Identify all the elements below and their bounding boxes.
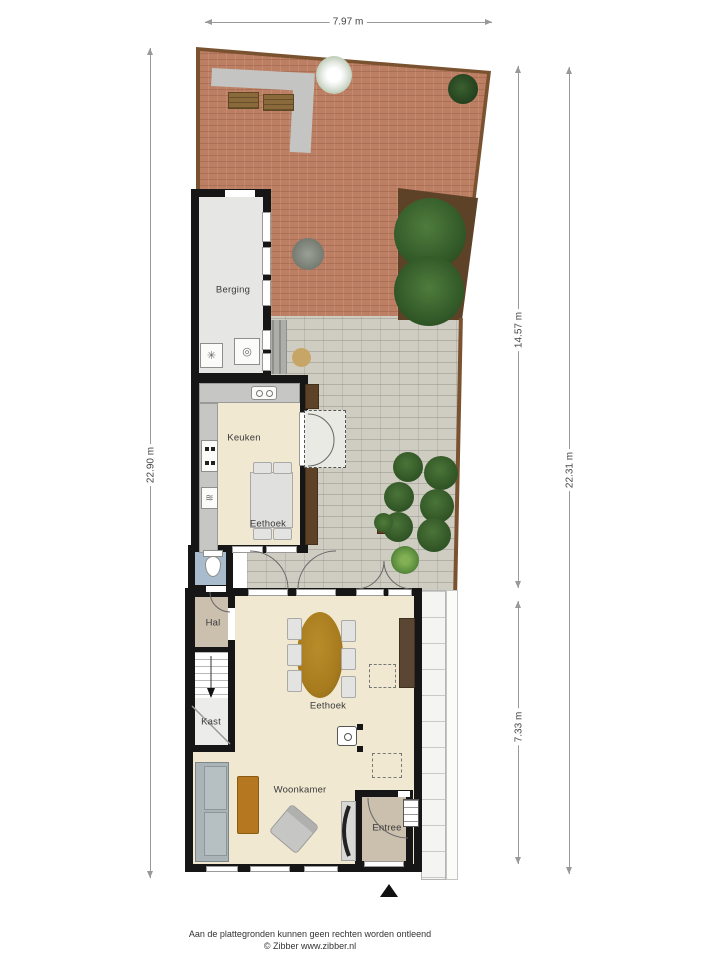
sidewalk-outer bbox=[446, 590, 458, 880]
patio-door bbox=[356, 589, 384, 596]
dim-label-top: 7.97 m bbox=[330, 17, 367, 28]
washer-icon: ✳ bbox=[200, 343, 223, 368]
patio-shrub-icon bbox=[393, 452, 423, 482]
window bbox=[250, 866, 290, 872]
garden-bush-icon bbox=[394, 256, 464, 326]
dim-label-right-lower: 7.33 m bbox=[514, 709, 525, 746]
stepping-stone bbox=[292, 348, 311, 367]
planter bbox=[305, 467, 318, 545]
stove-icon bbox=[201, 440, 218, 472]
chair bbox=[341, 620, 356, 642]
label-berging: Berging bbox=[216, 285, 250, 296]
radiator-dashed bbox=[369, 664, 396, 688]
label-hal: Hal bbox=[206, 618, 221, 629]
patio-shrub-icon bbox=[384, 482, 414, 512]
window bbox=[266, 546, 297, 553]
potted-plant-icon bbox=[374, 513, 393, 532]
window bbox=[262, 280, 271, 306]
toilet-door-gap bbox=[206, 586, 226, 592]
flue-point bbox=[357, 724, 363, 730]
footer-disclaimer: Aan de plattegronden kunnen geen rechten… bbox=[189, 928, 431, 940]
berging-door-gap bbox=[225, 190, 255, 197]
sideboard bbox=[399, 618, 415, 688]
tree-icon bbox=[448, 74, 478, 104]
chair bbox=[287, 670, 302, 692]
sofa-cushion bbox=[204, 766, 227, 810]
chair bbox=[341, 648, 356, 670]
entree-front-door-gap bbox=[398, 791, 410, 797]
window bbox=[364, 861, 404, 867]
fireplace-icon bbox=[337, 726, 357, 746]
flower-bush-icon bbox=[316, 56, 352, 94]
entrance-arrow-icon bbox=[380, 884, 398, 897]
garden-bench bbox=[228, 92, 259, 109]
sofa-cushion bbox=[204, 812, 227, 856]
footer: Aan de plattegronden kunnen geen rechten… bbox=[189, 928, 431, 952]
meter-cabinet bbox=[403, 799, 419, 827]
dim-label-right-upper: 14.57 m bbox=[514, 309, 525, 351]
flue-point bbox=[357, 746, 363, 752]
radiator-dashed bbox=[372, 753, 402, 778]
dim-label-left: 22.90 m bbox=[146, 444, 157, 486]
patio-shrub-icon bbox=[417, 518, 451, 552]
awning bbox=[304, 410, 346, 468]
hal-door-gap bbox=[228, 608, 235, 640]
grass-tuft-icon bbox=[391, 546, 419, 574]
label-entree: Entree bbox=[372, 823, 401, 834]
chair bbox=[273, 528, 292, 540]
tv-stand bbox=[341, 801, 356, 861]
window bbox=[206, 866, 238, 872]
window bbox=[262, 247, 271, 275]
patio-door bbox=[388, 589, 412, 596]
chair bbox=[287, 644, 302, 666]
label-kast: Kast bbox=[201, 717, 221, 728]
sidewalk bbox=[421, 590, 446, 880]
garden-bench bbox=[263, 94, 294, 111]
dishwasher-icon: ≋ bbox=[201, 487, 218, 509]
chair bbox=[287, 618, 302, 640]
chair bbox=[273, 462, 292, 474]
planter bbox=[305, 384, 319, 409]
gray-shrub-icon bbox=[292, 238, 324, 270]
footer-credit: © Zibber www.zibber.nl bbox=[189, 940, 431, 952]
dim-label-right-outer: 22.31 m bbox=[565, 449, 576, 491]
floorplan-canvas: 7.97 m 22.90 m 14.57 m 7.33 m 22.31 m bbox=[0, 0, 720, 960]
chair bbox=[341, 676, 356, 698]
label-eethoek-keuken: Eethoek bbox=[250, 519, 286, 530]
window bbox=[304, 866, 338, 872]
window bbox=[262, 212, 271, 242]
label-woonkamer: Woonkamer bbox=[274, 785, 327, 796]
dryer-icon: ◎ bbox=[234, 338, 260, 365]
window bbox=[262, 330, 271, 350]
window bbox=[232, 546, 263, 553]
sink-icon bbox=[251, 386, 277, 400]
chair bbox=[253, 462, 272, 474]
patio-shrub-icon bbox=[424, 456, 458, 490]
staircase bbox=[188, 652, 235, 700]
kitchen-counter-top bbox=[199, 383, 300, 403]
kitchen-counter-left bbox=[199, 403, 218, 553]
chair bbox=[253, 528, 272, 540]
patio-door bbox=[296, 589, 336, 596]
label-eethoek: Eethoek bbox=[310, 701, 346, 712]
label-keuken: Keuken bbox=[227, 433, 260, 444]
dining-table-oval bbox=[297, 612, 343, 698]
window bbox=[262, 353, 271, 371]
patio-door bbox=[248, 589, 288, 596]
coffee-table bbox=[237, 776, 259, 834]
